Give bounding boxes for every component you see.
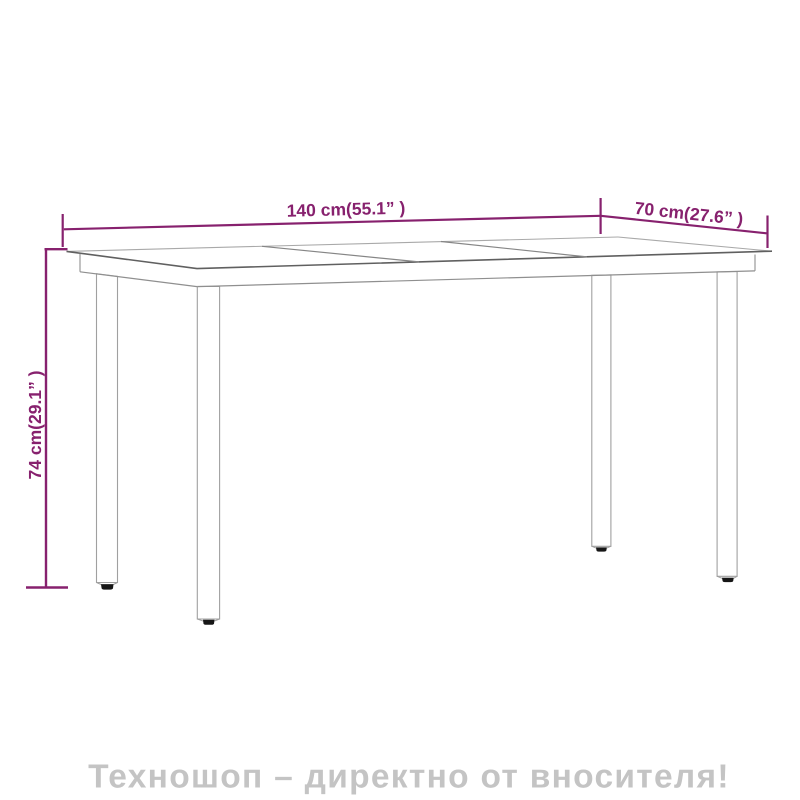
svg-text:74 cm(29.1” ): 74 cm(29.1” ): [25, 371, 45, 480]
svg-text:Техношоп – директно от вносите: Техношоп – директно от вносителя!: [88, 759, 730, 796]
svg-text:140 cm(55.1” ): 140 cm(55.1” ): [286, 198, 405, 221]
